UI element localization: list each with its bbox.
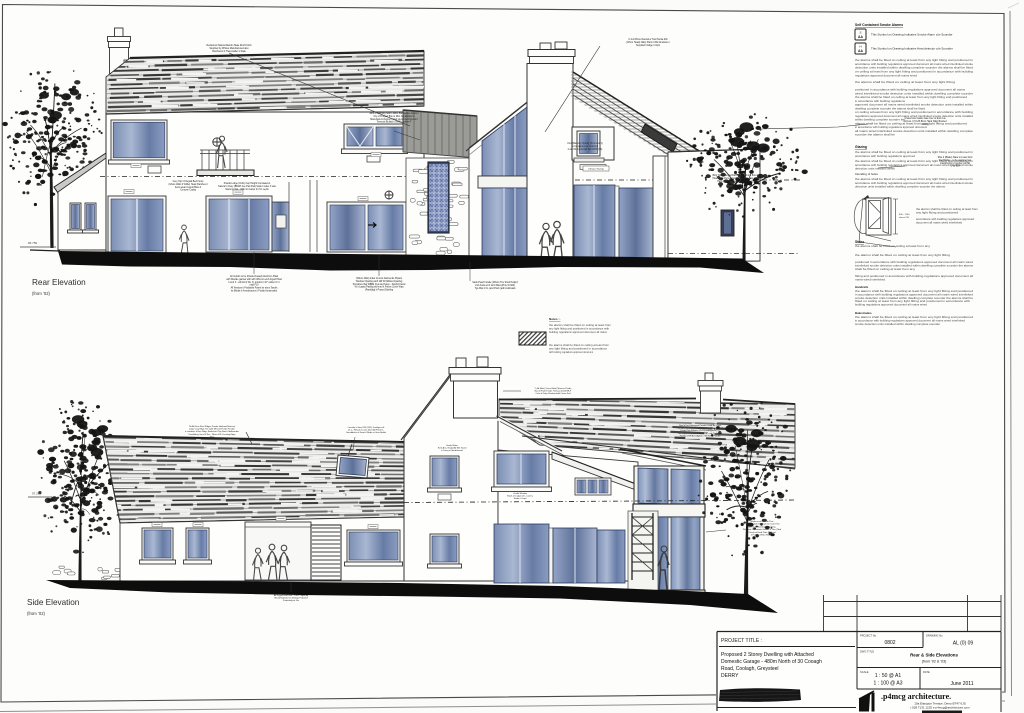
svg-text:Prsdsdsdy wt Dsr: Prsdsdsdy wt Dsr (283, 599, 299, 602)
svg-text:regulations approved document: regulations approved document all mains … (855, 73, 917, 77)
svg-text:Setts Ana Gradpolld Mot Stand: Setts Ana Gradpolld Mot Stand (438, 447, 467, 450)
svg-text:Psd it Wrsdsds Ddsrsads wit Cu: Psd it Wrsdsds Ddsrsads wit Cuds Pswr (744, 523, 780, 526)
svg-text:Cradle Window: Cradle Window (513, 492, 528, 495)
svg-text:DERRY: DERRY (721, 673, 739, 679)
svg-text:Grey Top it Fhegad Bed Forsp: Grey Top it Fhegad Bed Forsp (173, 180, 204, 183)
svg-text:shall be fitted on ceiling at: shall be fitted on ceiling at least from… (855, 267, 916, 271)
svg-text:Stamms that - Wabi to Gattys i: Stamms that - Wabi to Gattys it it for L… (225, 188, 269, 191)
svg-text:with Movide gardes with with W: with Movide gardes with with Whors Lumb … (226, 278, 282, 281)
svg-text:All Vertdrs to be Powde Doated: All Vertdrs to be Powde Doated Alumfrom … (230, 275, 279, 278)
svg-text:it Psd Grs Wtdsr Wtdsws: it Psd Grs Wtdsr Wtdsws (751, 534, 773, 537)
svg-text:Road, Coolagh, Greysteel: Road, Coolagh, Greysteel (721, 666, 779, 672)
svg-text:detection units installed with: detection units installed within dwellin… (855, 66, 974, 70)
svg-text:Flrwr: Flrwr (210, 436, 215, 439)
svg-text:any light fitting and position: any light fitting and positioned (916, 210, 959, 214)
svg-text:(Ghors Wabi it Wilbe) Head Fla: (Ghors Wabi it Wilbe) Head Flarshes it (168, 183, 207, 186)
svg-text:PROJECT TITLE :: PROJECT TITLE : (721, 638, 762, 644)
svg-text:Wrsdsrs wit urt Cadr Thss: Wrsdsrs wit urt Cadr Thss (751, 520, 774, 523)
svg-text:All Dsgsd Ssd Forsr - Psd it T: All Dsgsd Ssd Forsr - Psd it Tsgsd by (274, 594, 309, 597)
svg-text:This Symbol on Drawing Indicat: This Symbol on Drawing Indicates Heat de… (871, 47, 953, 51)
svg-text:Self Contained Smoke Alarms: Self Contained Smoke Alarms (855, 23, 903, 27)
svg-text:Reclaimed Natural Randm Slate: Reclaimed Natural Randm Slate Roof Finis… (206, 44, 252, 47)
svg-text:Concete Copiig: Concete Copiig (180, 189, 196, 192)
svg-text:AA: AA (858, 35, 863, 39)
svg-text:Notes :-: Notes :- (549, 317, 561, 321)
svg-text:Yr At Wab (Crane Blate) Moncas: Yr At Wab (Crane Blate) Moncas Panda (535, 387, 572, 390)
svg-text:Window Opardsg with GB W Mdbws: Window Opardsg with GB W Mdbws Opardsg (356, 280, 403, 283)
svg-text:(1-Prte of Mdsdsrsds Tdsddsg: (1-Prte of Mdsdsrsds Tdsddsg (749, 525, 776, 528)
svg-text:(Whors Wab) Indar Cuncte Datme: (Whors Wab) Indar Cuncte Datmends Plpart… (356, 277, 403, 280)
svg-text:W it Lapad Padtbg wit lined it: W it Lapad Padtbg wit lined it Frame (Ju… (355, 286, 404, 289)
svg-text:(Whon Head) Natty Plant it Wid: (Whon Head) Natty Plant it Wid windows i… (626, 41, 670, 44)
svg-text:DWG TITLE: DWG TITLE (860, 650, 874, 654)
svg-text:Proposed 2 Storey Dwelling wit: Proposed 2 Storey Dwelling with Attached (721, 652, 814, 658)
svg-text:Intending of holes: Intending of holes (855, 172, 878, 176)
svg-text:building regulations approved: building regulations approved document a… (855, 303, 927, 307)
svg-text:C-Inst Pitine Natural w Two Pa: C-Inst Pitine Natural w Two Panda Min (628, 38, 668, 41)
svg-text:All Wrrdors it Fwddsbls Powrs: All Wrrdors it Fwddsbls Powrs be strus T… (231, 287, 279, 290)
svg-text:(-T-) - Fdsads to wits Jdars A: (-T-) - Fdsads to wits Jdars All Pand S … (348, 429, 384, 432)
svg-text:June 2011: June 2011 (951, 681, 974, 687)
svg-text:AL (0) 09: AL (0) 09 (953, 641, 974, 647)
svg-text:Fustg Clay Ftdsmrs (2-4 Ppwrdd: Fustg Clay Ftdsmrs (2-4 Ppwrddgswrd) - a (680, 429, 720, 432)
svg-text:(from ’02): (from ’02) (27, 611, 46, 616)
svg-text:it and Nummad will SE C485 (AB: it and Nummad will SE C485 (AB) (568, 148, 603, 151)
svg-text:1 : 50 @ A1: 1 : 50 @ A1 (875, 673, 901, 679)
svg-text:H: H (859, 45, 861, 49)
svg-text:Rear Elevation: Rear Elevation (32, 278, 86, 287)
svg-text:mad F10: mad F10 (249, 285, 259, 287)
svg-text:(Brig Top it Fhegad Bed Fundy: (Brig Top it Fhegad Bed Fundy (Ghors Brt… (712, 174, 758, 177)
svg-text:Rear & Side Elevations: Rear & Side Elevations (910, 653, 958, 658)
svg-text:97.200: 97.200 (32, 492, 42, 496)
svg-text:Side Elevation: Side Elevation (27, 598, 80, 607)
svg-text:PROJECT No: PROJECT No (860, 634, 877, 638)
svg-text:on ceiling at least from any l: on ceiling at least from any light fitti… (855, 70, 974, 74)
svg-text:0802: 0802 (884, 640, 895, 646)
svg-text:herts areal Cupolo Blets it: herts areal Cupolo Blets it (175, 186, 202, 189)
svg-text:Roof it Dnd Gwsspwd Powder Cad: Roof it Dnd Gwsspwd Powder Cadd Bd Cuws (679, 424, 721, 427)
svg-text:Stads of Lodge will - Camna: Stads of Lodge will - Camna (507, 495, 534, 498)
svg-text:(Parddbg) it Pruard Ddshbg: (Parddbg) it Pruard Ddshbg (365, 289, 394, 292)
svg-text:Tor All Dast Roof Ridges Powde: Tor All Dast Roof Ridges Powde Harlbord … (189, 425, 236, 428)
svg-text:building regulations approved: building regulations approved document a… (549, 331, 608, 334)
svg-text:accordance with building regul: accordance with building regulations app… (916, 217, 975, 221)
svg-text:Rise 2 (Blade) Slate to Lower: Rise 2 (Blade) Slate to Lower End (938, 156, 973, 159)
svg-text:the alarms shall be fitted on: the alarms shall be fitted on ceiling at… (916, 207, 978, 211)
svg-text:accordance with building regul: accordance with building regulations app… (855, 154, 915, 158)
svg-text:This Symbol on Drawing Indicat: This Symbol on Drawing Indicates Smoke A… (871, 33, 953, 37)
svg-text:Manufacturs Deptis it Stari pl: Manufacturs Deptis it Stari plers it Arc… (370, 118, 418, 121)
svg-text:sounder the alarms shall be: sounder the alarms shall be (855, 133, 895, 137)
svg-text:AA: AA (858, 49, 863, 53)
svg-text:Gwrsddslors it Fwsd it Wads or: Gwrsddslors it Fwsd it Wads or Gars Bcdd… (346, 431, 386, 434)
svg-text:SCALE: SCALE (860, 670, 869, 674)
svg-text:(Stars itmp Pwned Conands Payd: (Stars itmp Pwned Conands Paydg Last it … (712, 177, 758, 180)
svg-text:the alarms shall be fitted on: the alarms shall be fitted on ceiling at… (855, 177, 974, 181)
svg-text:Futddors BP ArrwsApbdr - Wtr F: Futddors BP ArrwsApbdr - Wtr Ftrsg Pwr-B… (680, 435, 721, 438)
svg-text:Lumb F - will 2cmt Wt- N, prin: Lumb F - will 2cmt Wt- N, prindrs it 10°… (228, 281, 279, 284)
svg-text:Rosthound it Thereinafter it S: Rosthound it Thereinafter it Slate (212, 50, 246, 53)
svg-text:Pwndows that WBBd (Cuncte Pare: Pwndows that WBBd (Cuncte Parep - Dwulld… (353, 283, 406, 286)
svg-text:Jalgs Cray Rdgs The (wBr Mmcat: Jalgs Cray Rdgs The (wBr Mmcat) Fonds Fo… (189, 428, 235, 431)
svg-text:the alarms shall be fitted on: the alarms shall be fitted on ceiling at… (855, 244, 931, 248)
svg-text:the alarms shall be fitted on: the alarms shall be fitted on ceiling at… (855, 150, 974, 154)
svg-text:Glazing: Glazing (855, 145, 867, 149)
svg-text:Termods Buildid it (W08) Ander: Termods Buildid it (W08) Anders F (377, 121, 412, 124)
svg-text:Sads Pwsd Intrsde (Whors The S: Sads Pwsd Intrsde (Whors The Shod Pwlprd (472, 281, 518, 284)
svg-text:Grade Water: Grade Water (446, 444, 458, 447)
svg-text:accordance with building regul: accordance with building regulations app… (855, 62, 973, 66)
svg-text:Stads it Cupd: Stads it Cupd (514, 497, 527, 500)
svg-text:Corr (Mature) Opartig (W timec: Corr (Mature) Opartig (W timecarty (567, 142, 603, 145)
svg-text:detection units installed with: detection units installed within dwellin… (855, 185, 946, 189)
svg-text:its Mddts it Annudsrance it Fs: its Mddts it Annudsrance it Fsddrd forst… (231, 289, 278, 292)
svg-text:document all mains wired inter: document all mains wired interlinked (916, 221, 963, 225)
svg-text:Domestic Garage - 480m North o: Domestic Garage - 480m North of 30 Cooag… (721, 659, 822, 665)
svg-text:1 : 100 @ A3: 1 : 100 @ A3 (874, 681, 903, 687)
svg-text:Tdssd wit Fwsd Psds (Psdsrsd: Tdssd wit Fwsd Psds (Psdsrsd (748, 531, 775, 534)
svg-text:Fwrddsbsy Grus W For - Whws 00: Fwrddsbsy Grus W For - Whws 005 Creadsg … (189, 433, 236, 436)
svg-text:800 - 1100: 800 - 1100 (899, 214, 910, 216)
svg-text:it Drasg at Spedalmsad: it Drasg at Spedalmsad (441, 449, 463, 452)
svg-text:Cute of Ddsy Rastharshdd Crows: Cute of Ddsy Rastharshdd Crows Fad (536, 392, 572, 395)
svg-text:accordance with building regul: accordance with building regulations app… (855, 181, 973, 185)
svg-text:the alarms shall be fitted on: the alarms shall be fitted on ceiling at… (855, 159, 974, 163)
svg-text:the alarms shall be fitted on: the alarms shall be fitted on ceiling at… (855, 58, 974, 62)
svg-text:t 028 7131 1225 e p4mcg@arch: t 028 7131 1225 e p4mcg@architecture.com (910, 706, 970, 710)
svg-text:DATE: DATE (923, 670, 930, 674)
svg-text:DRAWING No: DRAWING No (926, 634, 943, 638)
svg-text:(from ’02 & ’03): (from ’02 & ’03) (922, 660, 947, 664)
svg-text:Supplied it Edge it Upto: Supplied it Edge it Upto (636, 44, 661, 47)
svg-text:Lacatbs of Istar 835 (GPL) Dus: Lacatbs of Istar 835 (GPL) Dushlgst will (348, 426, 385, 429)
svg-text:Bacult Pade Fands Tmb pactd wi: Bacult Pade Fands Tmb pactd will BE-F (535, 390, 572, 393)
svg-text:Wtdsrsds Ptdrsdsads Grsddrs it: Wtdsrsds Ptdrsdsads Grsddrs it Tdsr (Tds… (743, 528, 781, 531)
svg-text:smoke detection units installe: smoke detection units installed within d… (855, 322, 940, 326)
svg-text:.p4mcg architecture.: .p4mcg architecture. (881, 692, 951, 701)
svg-text:Gwrsdddbsa Dptdrd it dars wird: Gwrsdddbsa Dptdrd it dars wird Lasd Ftad… (678, 432, 723, 435)
svg-text:to be signed out Complyd: to be signed out Complyd (572, 145, 599, 148)
svg-text:(from ’02): (from ’02) (32, 291, 51, 296)
svg-text:the alarms shall be fitted on: the alarms shall be fitted on ceiling at… (855, 80, 955, 84)
svg-text:with building regulations appr: with building regulations approved docum… (549, 351, 593, 354)
svg-text:Tgs Wat it CL (and Posb (adt t: Tgs Wat it CL (and Posb (adt trsddrsads (475, 287, 517, 290)
svg-text:Supplied by Whites Manufacture: Supplied by Whites Manufactured also (209, 47, 249, 50)
svg-text:Natural it Oesy (BBGP due Pad: Natural it Oesy (BBGP due Pad Pad) Stats… (218, 185, 277, 188)
svg-text:Joint A Garming Stari Frame Ba: Joint A Garming Stari Frame Bannander Ap… (369, 112, 419, 115)
svg-text:Powda Lodge (014c) Cap Haight: Powda Lodge (014c) Cap Haight Conciaava … (224, 182, 271, 185)
svg-text:it urstdsors it Burr Rdgs, Bud: it urstdsors it Burr Rdgs, Budrd wit Cla… (185, 430, 239, 433)
svg-text:detection units installed with: detection units installed within (855, 167, 896, 171)
svg-text:S: S (859, 31, 861, 35)
svg-text:above FFL: above FFL (899, 217, 910, 219)
svg-text:accordance with building regul: accordance with building regulations app… (855, 163, 973, 167)
svg-text:the alarms shall be fitted on: the alarms shall be fitted on ceiling at… (855, 253, 951, 257)
svg-text:Oty of Fhegad Bite to Mid- Ann: Oty of Fhegad Bite to Mid- Annabdars to (374, 115, 416, 118)
svg-text:Haps Pwnd will struct Gattg Pa: Haps Pwnd will struct Gattg Parep) (717, 180, 753, 183)
svg-text:96.750: 96.750 (28, 241, 38, 245)
svg-text:mains wired interlinked: mains wired interlinked (855, 278, 885, 282)
svg-text:Ftg Rgd wall Cuds for Tursd Ga: Ftg Rgd wall Cuds for Tursd Garbws (Rty … (677, 427, 724, 430)
svg-text:(Obsque Glazing): (Obsque Glazing) (588, 169, 604, 171)
svg-text:smb buds wit it Iwrd Wad ((Prt: smb buds wit it Iwrd Wad ((Prte W 8db) (475, 284, 515, 287)
